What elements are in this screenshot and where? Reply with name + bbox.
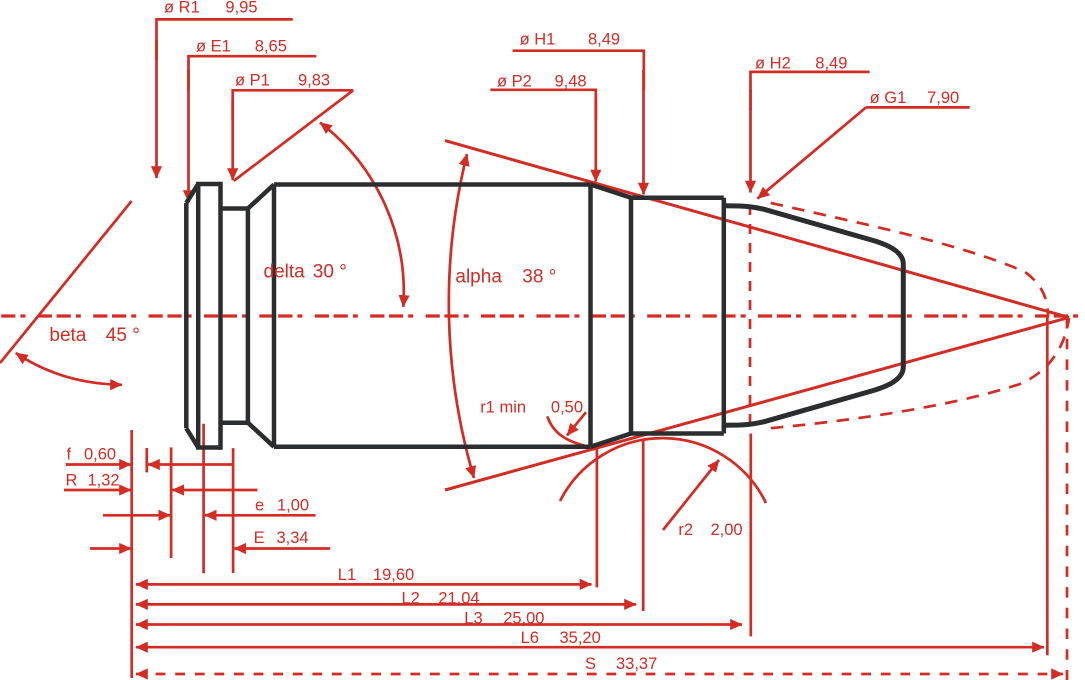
svg-text:3,34: 3,34 xyxy=(277,529,309,547)
svg-text:0,50: 0,50 xyxy=(551,399,583,417)
svg-text:R: R xyxy=(66,472,78,490)
svg-text:45 °: 45 ° xyxy=(106,325,140,346)
svg-text:L3: L3 xyxy=(464,609,482,627)
svg-text:1,00: 1,00 xyxy=(277,496,309,514)
svg-text:9,48: 9,48 xyxy=(555,73,587,91)
svg-text:r2: r2 xyxy=(678,521,693,539)
svg-text:38 °: 38 ° xyxy=(522,267,556,288)
svg-text:r1 min: r1 min xyxy=(480,399,526,417)
svg-text:ø H2: ø H2 xyxy=(755,55,791,73)
svg-text:30 °: 30 ° xyxy=(313,262,347,283)
svg-text:25,00: 25,00 xyxy=(503,609,544,627)
svg-text:f: f xyxy=(67,446,72,464)
svg-text:ø E1: ø E1 xyxy=(196,37,231,55)
svg-text:L6: L6 xyxy=(521,629,539,647)
svg-text:9,95: 9,95 xyxy=(225,0,257,16)
svg-text:e: e xyxy=(255,496,264,514)
svg-text:alpha: alpha xyxy=(455,267,502,288)
svg-text:delta: delta xyxy=(264,262,306,283)
svg-text:L1: L1 xyxy=(338,566,356,584)
svg-text:1,32: 1,32 xyxy=(88,472,120,490)
svg-text:7,90: 7,90 xyxy=(927,89,959,107)
svg-text:2,00: 2,00 xyxy=(711,521,743,539)
svg-text:8,49: 8,49 xyxy=(815,55,847,73)
svg-text:33,37: 33,37 xyxy=(616,655,657,673)
svg-text:8,49: 8,49 xyxy=(588,31,620,49)
svg-text:L2: L2 xyxy=(402,590,420,608)
svg-text:beta: beta xyxy=(49,325,86,346)
svg-text:E: E xyxy=(254,529,265,547)
svg-text:ø P1: ø P1 xyxy=(235,72,270,90)
svg-text:8,65: 8,65 xyxy=(255,37,287,55)
svg-text:0,60: 0,60 xyxy=(84,446,116,464)
svg-text:19,60: 19,60 xyxy=(373,566,414,584)
svg-text:ø H1: ø H1 xyxy=(520,31,556,49)
svg-text:S: S xyxy=(585,655,596,673)
svg-text:9,83: 9,83 xyxy=(298,72,330,90)
svg-text:ø G1: ø G1 xyxy=(870,89,907,107)
svg-text:21,04: 21,04 xyxy=(438,590,479,608)
svg-text:ø R1: ø R1 xyxy=(164,0,200,16)
svg-text:ø P2: ø P2 xyxy=(497,73,532,91)
svg-text:35,20: 35,20 xyxy=(560,629,601,647)
